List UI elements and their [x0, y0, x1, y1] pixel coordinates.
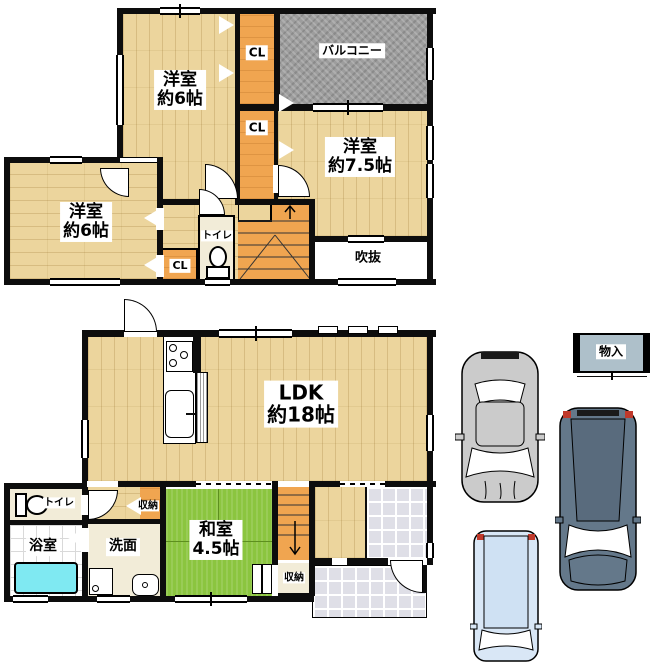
window	[205, 278, 230, 286]
stove-burner	[169, 359, 177, 367]
stairs-2f	[238, 203, 312, 281]
window	[426, 48, 434, 80]
hall-entrance-floor	[315, 487, 367, 558]
label-balcony: バルコニー	[319, 43, 385, 58]
label-ldk: LDK約18帖	[264, 381, 338, 428]
sliding-door-opening	[196, 481, 272, 487]
label-storage-box: 物入	[596, 344, 626, 359]
genkan-tile-floor	[367, 487, 427, 558]
sliding-door-opening	[340, 481, 385, 487]
window	[50, 278, 120, 286]
window	[426, 415, 434, 451]
car-sedan-gray	[455, 348, 545, 506]
wall	[309, 199, 315, 285]
car-van-lightblue	[470, 528, 542, 664]
wall	[157, 199, 205, 205]
washing-machine-dial	[92, 585, 99, 592]
window	[348, 235, 384, 243]
door-marker	[144, 256, 159, 274]
toilet-tank-2f	[206, 266, 230, 279]
toilet-fixture-2f	[209, 246, 227, 268]
wall	[4, 483, 10, 602]
label-closet-top: CL	[246, 45, 268, 60]
label-room-2f-right: 洋室約7.5帖	[325, 137, 395, 177]
window-tick	[210, 592, 212, 606]
window	[81, 420, 89, 458]
window	[50, 156, 82, 164]
label-hall-storage: 収納	[137, 500, 159, 511]
wash-basin-drain	[142, 582, 148, 588]
kitchen-back-door-arc	[124, 299, 157, 332]
label-void: 吹抜	[352, 251, 384, 268]
window-tick	[347, 100, 349, 115]
label-bath: 浴室	[26, 538, 60, 556]
stove-burner	[180, 351, 188, 359]
wall	[4, 596, 314, 602]
window	[426, 543, 434, 558]
genkan-step-line	[365, 487, 367, 558]
wall	[4, 157, 10, 285]
wall	[347, 558, 388, 565]
door-marker	[144, 209, 159, 227]
wall	[4, 483, 88, 489]
window-tick	[179, 4, 181, 18]
label-closet-left: CL	[169, 259, 190, 273]
high-window	[348, 326, 368, 334]
label-room-2f-left: 洋室約6帖	[60, 202, 112, 242]
wall	[278, 593, 309, 597]
closet-door-marker	[219, 16, 234, 34]
counter-side	[196, 372, 208, 443]
bathtub	[14, 562, 78, 594]
wall	[160, 483, 166, 602]
door-opening	[87, 481, 118, 487]
sink-tap	[186, 413, 195, 415]
car-suv-dark	[555, 405, 641, 593]
kitchen-wall-stub	[193, 336, 201, 373]
wall	[4, 520, 85, 525]
window-tick	[255, 326, 257, 341]
high-window	[378, 326, 398, 334]
label-washitsu: 和室4.5帖	[189, 520, 242, 560]
wall	[309, 483, 315, 596]
stairs-1f	[278, 487, 312, 560]
label-washitsu-storage: 収納	[283, 572, 305, 583]
window	[426, 126, 434, 160]
balcony-floor	[280, 14, 427, 104]
label-closet-mid: CL	[246, 120, 268, 135]
window	[426, 164, 434, 198]
floor-plan: 洋室約6帖 CL バルコニー CL 洋室約7.5帖 洋室約6帖 CL トイレ 吹…	[0, 0, 658, 668]
label-toilet-2f: トイレ	[201, 230, 233, 241]
window	[338, 278, 396, 286]
stairs-opening	[278, 481, 309, 487]
stove-burner	[169, 344, 177, 352]
window	[97, 595, 130, 603]
bifold-door	[262, 564, 272, 594]
window	[116, 55, 124, 125]
label-washroom: 洗面	[106, 538, 140, 556]
wall	[274, 110, 278, 165]
wall	[272, 483, 278, 565]
wall	[82, 330, 88, 487]
opening	[332, 558, 347, 565]
bath-door-marker	[68, 529, 83, 547]
storage-box-tick	[611, 372, 613, 380]
wall	[238, 199, 315, 205]
high-window	[318, 326, 338, 334]
label-toilet-1f: トイレ	[43, 497, 75, 508]
ldk-floor	[88, 337, 427, 481]
opening	[120, 157, 157, 163]
closet-door-marker	[279, 141, 294, 159]
window	[13, 595, 48, 603]
bifold-door	[252, 564, 262, 594]
closet-door-marker	[279, 94, 294, 112]
wall	[85, 519, 163, 524]
label-room-2f-top: 洋室約6帖	[154, 70, 206, 110]
closet-door-marker	[219, 64, 234, 82]
